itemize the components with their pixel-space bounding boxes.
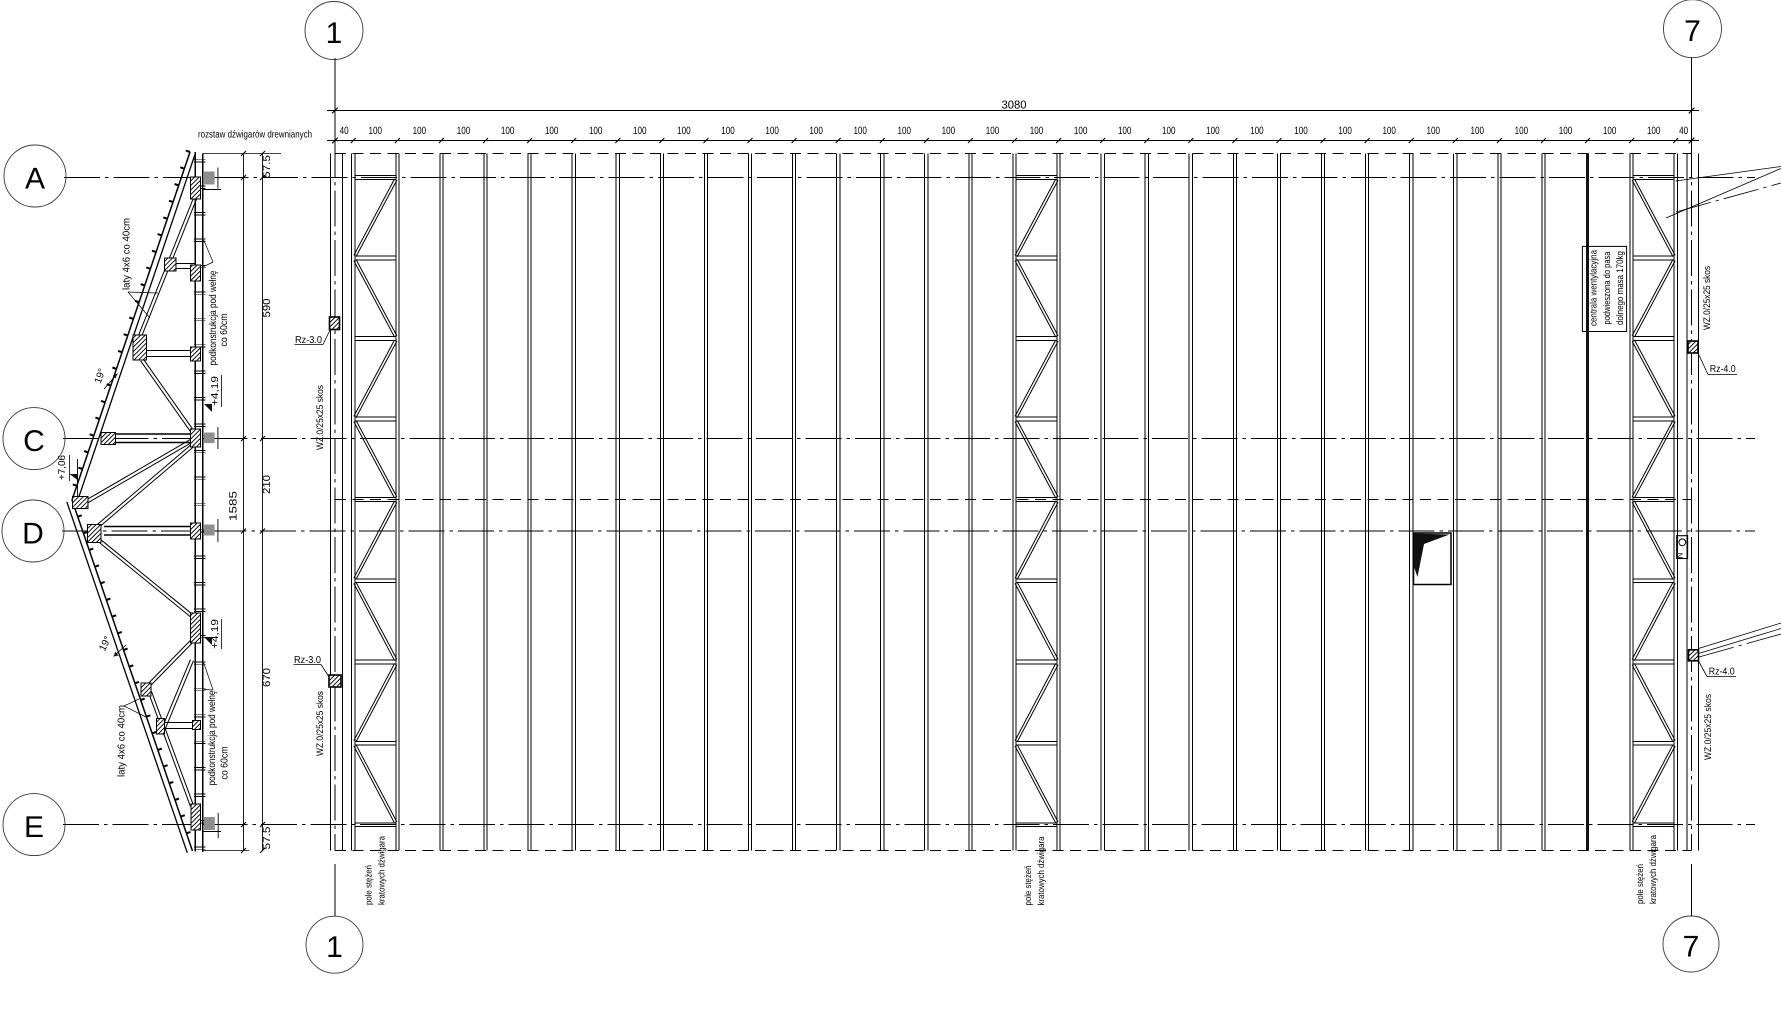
svg-text:100: 100 — [1206, 125, 1220, 137]
svg-text:100: 100 — [1250, 125, 1264, 137]
svg-text:590: 590 — [261, 298, 273, 317]
svg-text:100: 100 — [545, 125, 559, 137]
svg-text:E: E — [24, 811, 44, 844]
svg-text:100: 100 — [589, 125, 603, 137]
svg-text:100: 100 — [1074, 125, 1088, 137]
svg-text:40: 40 — [1679, 125, 1688, 137]
svg-text:100: 100 — [898, 125, 912, 137]
svg-text:57.5: 57.5 — [261, 155, 273, 178]
svg-text:laty 4x6 co 40cm: laty 4x6 co 40cm — [122, 218, 133, 290]
svg-text:100: 100 — [501, 125, 515, 137]
svg-text:670: 670 — [261, 668, 273, 687]
svg-text:100: 100 — [369, 125, 383, 137]
svg-text:100: 100 — [677, 125, 691, 137]
svg-text:1: 1 — [326, 17, 343, 50]
svg-text:co 60cm: co 60cm — [219, 314, 230, 347]
svg-text:100: 100 — [1647, 125, 1661, 137]
svg-text:100: 100 — [457, 125, 471, 137]
svg-text:100: 100 — [765, 125, 779, 137]
svg-text:Rz-4.0: Rz-4.0 — [1710, 364, 1736, 375]
svg-text:100: 100 — [633, 125, 647, 137]
svg-text:podkonstrukcja pod wełnę: podkonstrukcja pod wełnę — [208, 270, 219, 365]
svg-text:Rz-4.0: Rz-4.0 — [1709, 667, 1735, 678]
svg-text:kratowych dźwigara: kratowych dźwigara — [377, 836, 387, 905]
svg-text:40: 40 — [340, 125, 349, 137]
svg-text:100: 100 — [1559, 125, 1573, 137]
svg-text:podwieszona do pasa: podwieszona do pasa — [1602, 251, 1613, 325]
svg-text:kratowych dźwigara: kratowych dźwigara — [1648, 835, 1658, 904]
svg-text:co 60cm: co 60cm — [220, 747, 231, 780]
svg-text:+4,19: +4,19 — [210, 375, 221, 406]
svg-text:D: D — [22, 517, 44, 550]
svg-text:WZ.0/25x25 skos: WZ.0/25x25 skos — [315, 691, 326, 756]
svg-text:pole stężeń: pole stężeń — [1023, 866, 1033, 906]
svg-text:1: 1 — [326, 931, 343, 964]
svg-text:7: 7 — [1683, 930, 1700, 963]
svg-text:WZ.0/25x25 skos: WZ.0/25x25 skos — [1702, 266, 1713, 330]
svg-text:100: 100 — [1603, 125, 1617, 137]
svg-text:pole stężeń: pole stężeń — [364, 865, 374, 905]
svg-text:100: 100 — [1382, 125, 1396, 137]
svg-text:WZ.0/25x25 skos: WZ.0/25x25 skos — [1703, 694, 1714, 760]
svg-text:A: A — [25, 162, 45, 195]
svg-text:100: 100 — [1515, 125, 1529, 137]
svg-text:kratowych dźwigara: kratowych dźwigara — [1036, 837, 1046, 906]
svg-text:7: 7 — [1684, 15, 1701, 48]
svg-text:100: 100 — [1338, 125, 1352, 137]
svg-text:1585: 1585 — [228, 491, 240, 521]
svg-text:rozstaw dźwigarów drewnianych: rozstaw dźwigarów drewnianych — [198, 130, 312, 141]
svg-text:100: 100 — [986, 125, 1000, 137]
svg-text:210: 210 — [261, 475, 273, 494]
svg-text:100: 100 — [1471, 125, 1485, 137]
svg-text:laty 4x6 co 40cm: laty 4x6 co 40cm — [117, 705, 128, 777]
svg-text:100: 100 — [413, 125, 427, 137]
svg-text:100: 100 — [1294, 125, 1308, 137]
svg-text:100: 100 — [853, 125, 867, 137]
svg-text:100: 100 — [809, 125, 823, 137]
svg-text:pole stężeń: pole stężeń — [1635, 864, 1645, 904]
svg-text:N: N — [1676, 552, 1685, 558]
svg-text:WZ.0/25x25 skos: WZ.0/25x25 skos — [315, 385, 326, 450]
svg-text:100: 100 — [1030, 125, 1044, 137]
svg-text:C: C — [23, 425, 45, 458]
svg-text:100: 100 — [1427, 125, 1441, 137]
svg-text:100: 100 — [721, 125, 735, 137]
svg-text:+7,06: +7,06 — [57, 455, 68, 480]
svg-text:100: 100 — [1118, 125, 1132, 137]
svg-text:podkonstrukcja pod wełnę: podkonstrukcja pod wełnę — [207, 690, 218, 785]
svg-text:100: 100 — [1162, 125, 1176, 137]
svg-text:dolnego masa 170kg: dolnego masa 170kg — [1615, 251, 1626, 325]
svg-text:100: 100 — [942, 125, 956, 137]
svg-text:centrala wentylacyjna: centrala wentylacyjna — [1589, 249, 1600, 326]
svg-text:3080: 3080 — [1002, 100, 1027, 112]
svg-text:57.5: 57.5 — [261, 826, 273, 849]
